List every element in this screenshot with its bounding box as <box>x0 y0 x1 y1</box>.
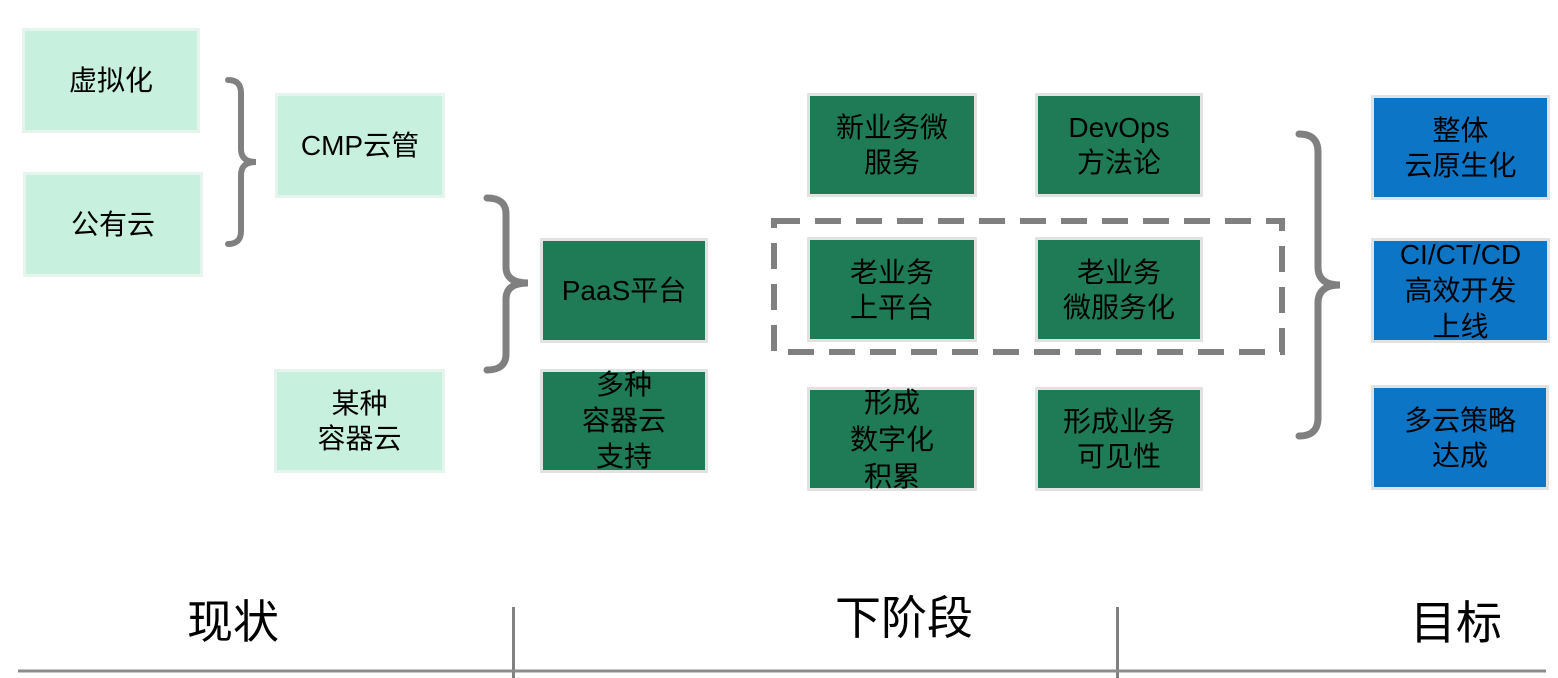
box-legacy-microservices: 老业务 微服务化 <box>1035 237 1203 342</box>
brace-right <box>1299 134 1340 436</box>
box-legacy-on-platform: 老业务 上平台 <box>807 237 977 342</box>
box-overall-cloud-native: 整体 云原生化 <box>1371 95 1550 200</box>
box-ci-ct-cd-delivery: CI/CT/CD 高效开发 上线 <box>1371 238 1550 343</box>
box-new-biz-microservices: 新业务微 服务 <box>807 93 977 197</box>
box-cmp-cloud-mgmt: CMP云管 <box>275 93 445 198</box>
box-business-visibility: 形成业务 可见性 <box>1035 387 1203 491</box>
box-multi-container-support: 多种 容器云 支持 <box>540 369 708 473</box>
roadmap-diagram: 虚拟化 公有云 CMP云管 某种 容器云 PaaS平台 多种 容器云 支持 新业… <box>0 0 1558 678</box>
box-devops-methodology: DevOps 方法论 <box>1035 93 1203 197</box>
stage-label-current: 现状 <box>123 597 343 649</box>
box-paas-platform: PaaS平台 <box>540 238 708 343</box>
box-public-cloud: 公有云 <box>23 172 203 277</box>
stage-label-next: 下阶段 <box>794 593 1014 645</box>
brace-middle <box>487 198 528 370</box>
connector-overlay <box>0 0 1558 678</box>
stage-label-goal: 目标 <box>1346 598 1558 650</box>
box-digital-accumulation: 形成 数字化 积累 <box>807 387 977 491</box>
box-some-container-cloud: 某种 容器云 <box>274 369 445 473</box>
box-multi-cloud-strategy: 多云策略 达成 <box>1371 385 1549 490</box>
brace-left <box>228 80 256 244</box>
box-virtualization: 虚拟化 <box>22 28 200 133</box>
